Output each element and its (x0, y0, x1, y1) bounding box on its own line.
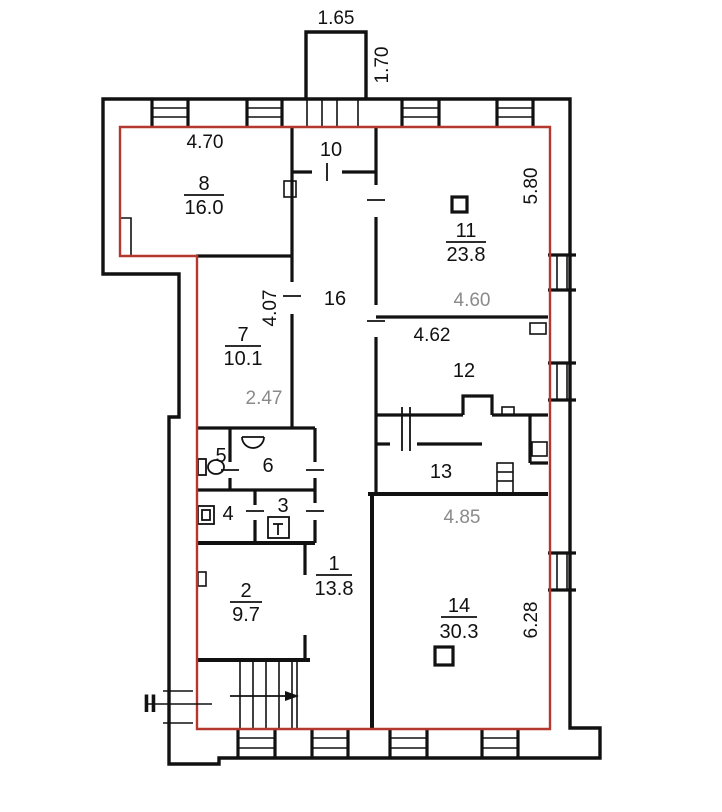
room-11-number: 11 (456, 220, 477, 242)
room-5-number: 5 (215, 445, 226, 467)
room-14-area: 30.3 (440, 621, 479, 643)
room-8-area: 16.0 (185, 197, 224, 219)
window-top-4 (497, 99, 533, 127)
duct-corridor (284, 181, 296, 197)
room-labels: 8 16.0 10 11 23.8 16 7 10.1 12 13 5 6 4 … (184, 139, 486, 643)
dim-4-60: 4.60 (454, 290, 491, 311)
top-protrusion (306, 32, 366, 98)
duct-room13-right (532, 442, 547, 456)
room-7-area: 10.1 (224, 348, 263, 370)
stairs (230, 662, 299, 728)
dim-4-62: 4.62 (414, 325, 451, 346)
room-1-area: 13.8 (315, 578, 354, 600)
window-bottom-2 (312, 728, 348, 758)
dim-1-65: 1.65 (318, 8, 355, 29)
window-bottom-4 (482, 728, 518, 758)
dim-4-85: 4.85 (444, 507, 481, 528)
room-2-number: 2 (240, 580, 251, 602)
room-4-number: 4 (222, 503, 233, 525)
room-1-number: 1 (328, 553, 339, 575)
room-11-area: 23.8 (447, 244, 486, 266)
window-top-2 (247, 99, 282, 127)
room-3-number: 3 (277, 495, 288, 517)
window-bottom-1 (238, 728, 275, 758)
room-label-1: 1 13.8 (315, 553, 354, 600)
dim-2-47: 2.47 (246, 388, 283, 409)
niche-room8 (120, 218, 131, 256)
window-right-3 (548, 553, 576, 590)
window-top-3 (402, 99, 439, 127)
room-12-number: 12 (453, 360, 475, 382)
room-label-7: 7 10.1 (224, 324, 263, 370)
dim-6-28: 6.28 (521, 602, 542, 639)
room-16-number: 16 (324, 288, 346, 310)
floor-plan-svg: II 8 16.0 10 11 23.8 16 7 10.1 12 13 5 6… (0, 0, 722, 812)
room-label-11: 11 23.8 (446, 220, 486, 266)
niche-room2 (198, 572, 206, 586)
room-label-8: 8 16.0 (184, 173, 224, 219)
room-13-number: 13 (430, 461, 452, 483)
room-2-area: 9.7 (232, 604, 260, 626)
outer-walls (103, 32, 600, 764)
window-bottom-3 (390, 728, 427, 758)
sink-icon (242, 437, 264, 448)
duct-room12-right (530, 323, 546, 334)
water-heater-icon (268, 517, 289, 538)
window-right-1 (548, 255, 576, 290)
dim-4-07: 4.07 (260, 290, 281, 327)
room-label-14: 14 30.3 (440, 595, 479, 643)
window-top-1 (152, 99, 188, 127)
window-right-2 (548, 363, 576, 400)
dim-5-80: 5.80 (521, 168, 542, 205)
dim-1-70: 1.70 (372, 47, 393, 84)
room-label-2: 2 9.7 (230, 580, 262, 626)
room-8-number: 8 (198, 173, 209, 195)
room-6-number: 6 (262, 455, 273, 477)
shaft-room13 (497, 463, 513, 493)
room-7-number: 7 (237, 324, 248, 346)
floor-plan-page: II 8 16.0 10 11 23.8 16 7 10.1 12 13 5 6… (0, 0, 722, 812)
room-14-number: 14 (448, 595, 470, 617)
column-room11 (452, 197, 467, 212)
dim-4-70: 4.70 (187, 132, 224, 153)
section-marker: II (143, 690, 212, 723)
section-marker-label: II (143, 690, 157, 718)
washbasin-icon (198, 506, 214, 524)
column-room14 (435, 647, 453, 665)
room-10-number: 10 (320, 139, 342, 161)
